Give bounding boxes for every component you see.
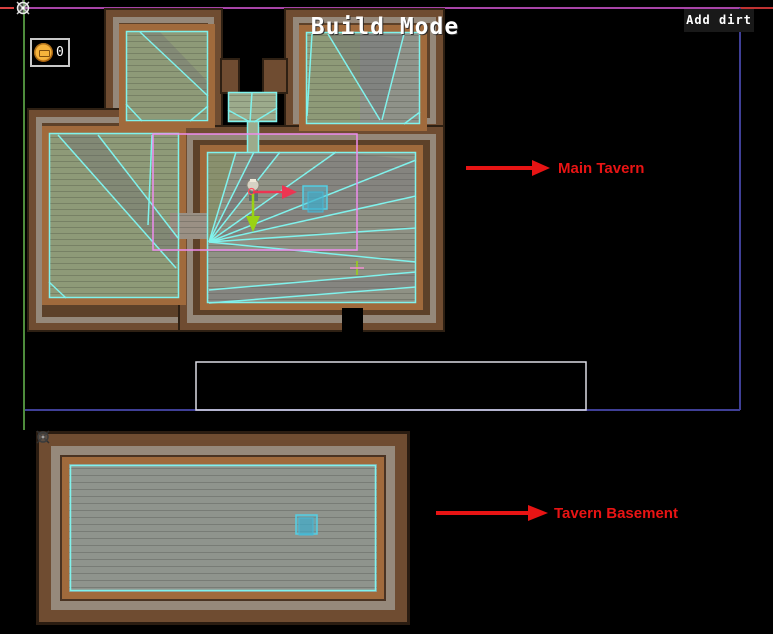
selected-object-main[interactable] bbox=[303, 186, 327, 212]
basement-gizmo-icon[interactable] bbox=[37, 431, 49, 443]
build-mode-stage: Build Mode Add dirt 0 Main Tavern Tavern… bbox=[0, 0, 773, 634]
coin-counter: 0 bbox=[30, 38, 70, 67]
coin-icon bbox=[34, 43, 53, 62]
build-mode-title: Build Mode bbox=[300, 14, 470, 40]
tavern-basement-building[interactable] bbox=[36, 431, 410, 625]
tavern-basement-label: Tavern Basement bbox=[554, 505, 678, 522]
white-outline-rect bbox=[196, 362, 586, 410]
add-dirt-button[interactable]: Add dirt bbox=[684, 9, 754, 32]
main-tavern-arrow bbox=[466, 160, 550, 176]
selected-object-basement[interactable] bbox=[296, 515, 317, 535]
main-tavern-label: Main Tavern bbox=[558, 160, 644, 177]
move-gizmo-icon[interactable] bbox=[17, 0, 29, 14]
coin-count: 0 bbox=[56, 45, 64, 60]
scene-canvas[interactable] bbox=[0, 0, 773, 634]
tavern-basement-arrow bbox=[436, 505, 548, 521]
